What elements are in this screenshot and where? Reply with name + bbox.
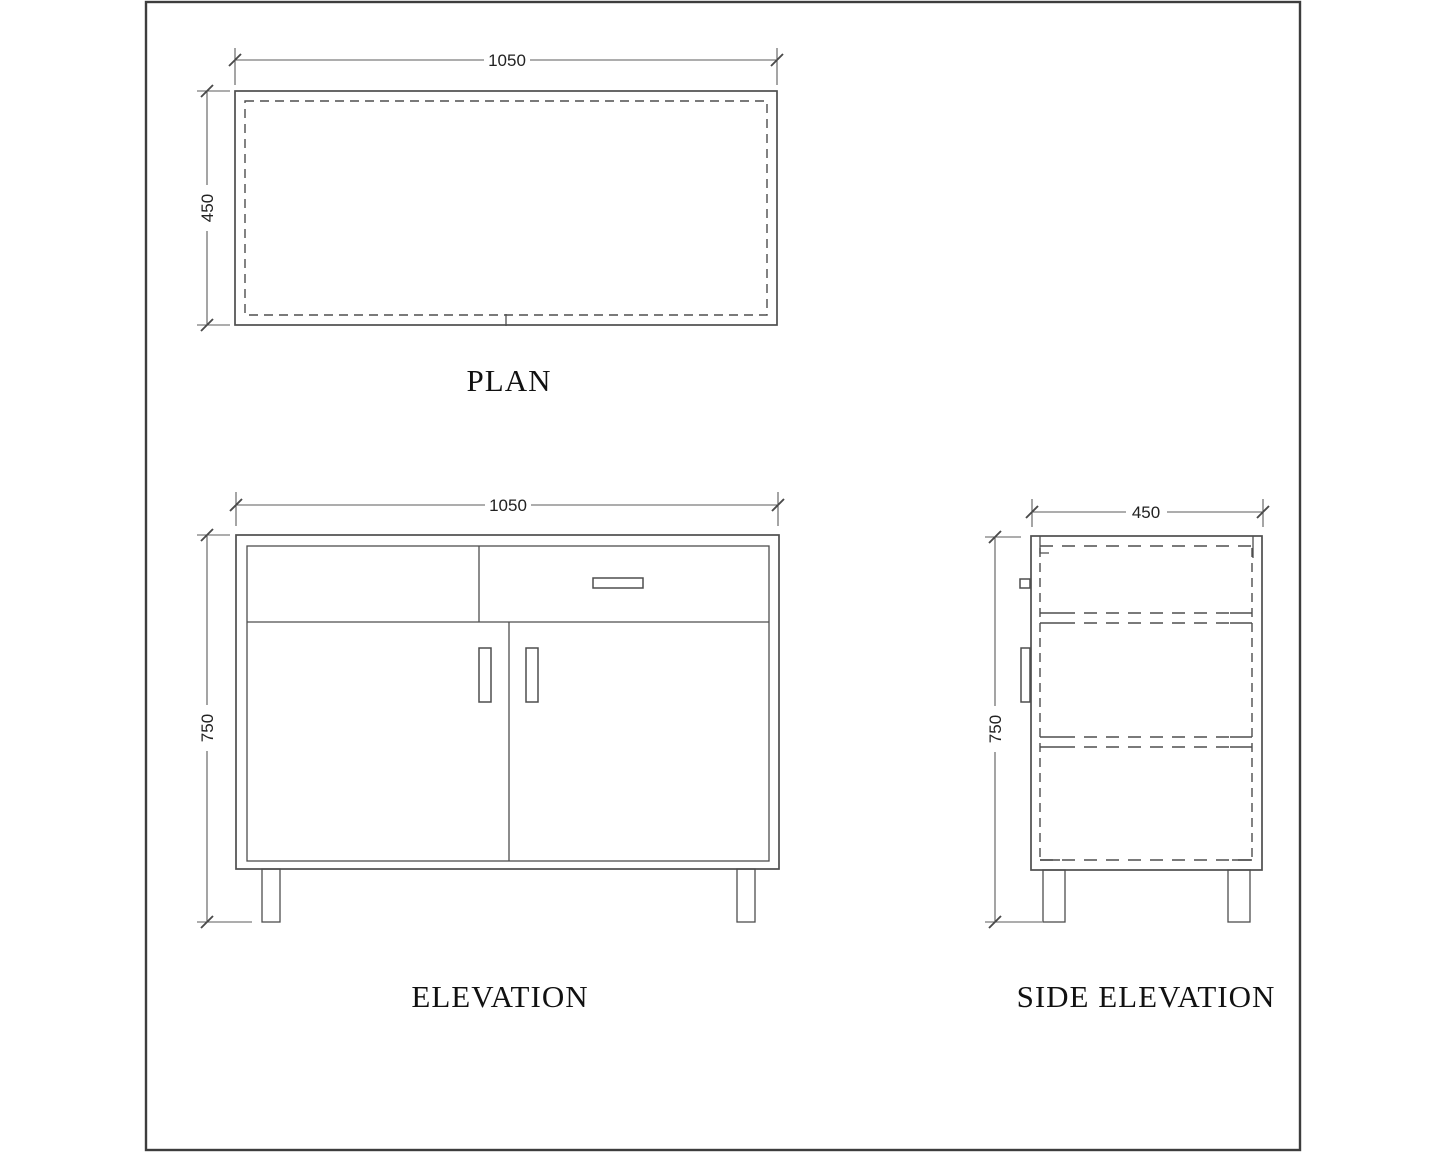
side-right-leg [1228, 870, 1250, 922]
side-depth-value: 450 [1132, 503, 1160, 522]
side-panel-outline [1031, 536, 1262, 870]
plan-view: 1050 450 PLAN [197, 48, 783, 398]
plan-cabinet-outline [235, 91, 777, 325]
side-height-value: 750 [986, 715, 1005, 743]
elevation-left-leg [262, 869, 280, 922]
plan-inner-dashed-outline [245, 101, 767, 315]
elevation-view-label: ELEVATION [411, 979, 588, 1014]
front-top-corner-notch [1040, 536, 1049, 553]
side-elevation-view: 450 750 SIDE ELEVATION [985, 499, 1275, 1014]
elevation-width-dimension: 1050 [230, 492, 784, 526]
sheet-border-frame [146, 2, 1300, 1150]
technical-drawing: 1050 450 PLAN [0, 0, 1445, 1156]
drawing-sheet: 1050 450 PLAN [0, 0, 1445, 1156]
plan-view-label: PLAN [467, 363, 552, 398]
elevation-height-value: 750 [198, 714, 217, 742]
drawer-handle-side-view [1020, 579, 1030, 588]
elevation-cabinet-outline [236, 535, 779, 869]
elevation-width-value: 1050 [489, 496, 527, 515]
shelf-1-hidden [1040, 613, 1252, 623]
plan-width-value: 1050 [488, 51, 526, 70]
elevation-view: 1050 750 ELEVATION [197, 492, 784, 1014]
elevation-inner-carcass [247, 546, 769, 861]
side-depth-dimension: 450 [1026, 499, 1269, 527]
shelf-2-hidden [1040, 737, 1252, 747]
elevation-right-leg [737, 869, 755, 922]
drawer-handle [593, 578, 643, 588]
side-left-leg [1043, 870, 1065, 922]
plan-depth-dimension: 450 [197, 85, 230, 331]
left-door-handle [479, 648, 491, 702]
side-elevation-view-label: SIDE ELEVATION [1017, 979, 1276, 1014]
plan-depth-value: 450 [198, 194, 217, 222]
plan-width-dimension: 1050 [229, 48, 783, 85]
right-door-handle [526, 648, 538, 702]
door-handle-side-view [1021, 648, 1030, 702]
side-height-dimension: 750 [985, 531, 1042, 928]
